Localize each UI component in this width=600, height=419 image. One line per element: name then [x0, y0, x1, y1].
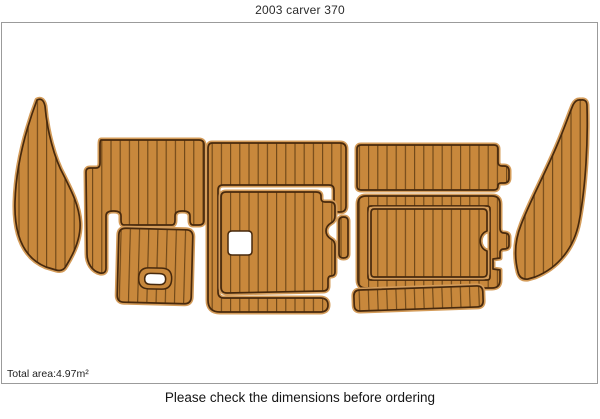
footer-note: Please check the dimensions before order… — [0, 390, 600, 405]
left-wing-pad — [15, 99, 80, 270]
right-bottom-pad — [354, 286, 484, 311]
cutout-hole — [228, 231, 252, 255]
right-wing-pad — [516, 100, 588, 279]
left-step-pad — [117, 228, 193, 304]
center-divider-pad — [339, 217, 348, 258]
right-inner-pad — [371, 209, 487, 277]
right-top-pad — [357, 145, 509, 190]
cutout-hole — [145, 273, 166, 285]
deck-pad-diagram — [0, 0, 600, 419]
total-area-label: Total area:4.97m² — [7, 368, 89, 380]
center-main-pad — [221, 192, 335, 293]
